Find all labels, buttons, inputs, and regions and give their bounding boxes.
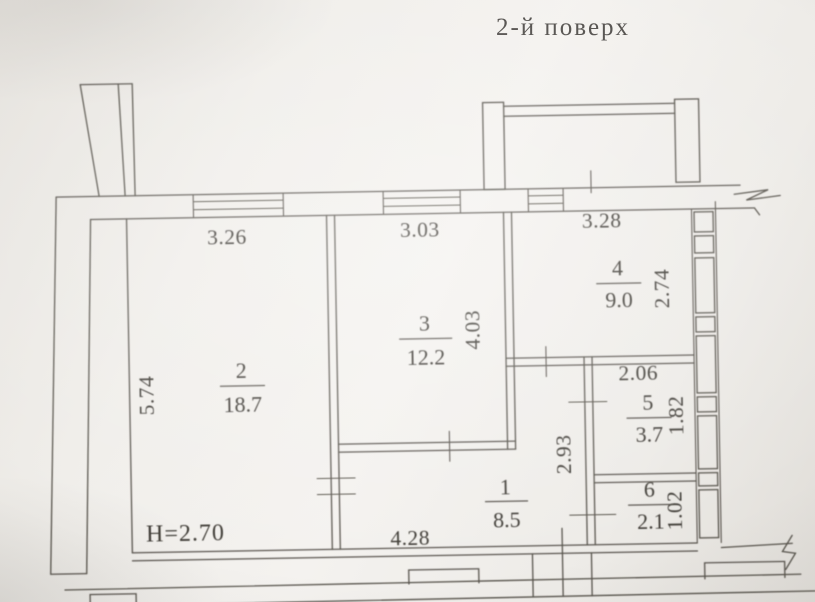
room-label-3: 3 12.2 xyxy=(399,310,452,370)
room1-number: 1 xyxy=(500,474,511,499)
ceiling-height-note: H=2.70 xyxy=(146,520,225,547)
room-labels: 1 8.5 2 18.7 3 12.2 4 9.0 xyxy=(218,254,673,541)
dim-room6-right: 1.02 xyxy=(662,490,687,530)
room-label-4: 4 9.0 xyxy=(596,255,641,313)
dim-room3-top: 3.03 xyxy=(400,217,440,242)
room3-number: 3 xyxy=(419,311,430,336)
dim-room2-left: 5.74 xyxy=(134,376,159,416)
room5-area: 3.7 xyxy=(635,422,663,447)
room6-number: 6 xyxy=(644,477,655,502)
dim-room2-top: 3.26 xyxy=(207,225,247,250)
room4-number: 4 xyxy=(612,255,623,280)
room2-number: 2 xyxy=(235,358,246,383)
dim-room4-right: 2.74 xyxy=(649,269,674,309)
room2-area: 18.7 xyxy=(223,392,262,418)
dim-hall-left: 2.93 xyxy=(551,434,576,474)
dim-room3-right: 4.03 xyxy=(460,310,485,350)
dim-room5-right: 1.82 xyxy=(664,395,689,435)
room1-area: 8.5 xyxy=(493,507,521,532)
dim-hall-bottom: 4.28 xyxy=(390,526,430,551)
room3-area: 12.2 xyxy=(407,344,446,370)
room-label-1: 1 8.5 xyxy=(485,474,528,533)
page-title: 2-й поверх xyxy=(496,14,630,41)
room4-area: 9.0 xyxy=(605,287,633,312)
room-label-2: 2 18.7 xyxy=(220,358,265,418)
windows xyxy=(193,188,563,217)
floor-plan-drawing: 2-й поверх xyxy=(0,0,815,602)
dim-room4-top: 3.28 xyxy=(582,208,622,233)
room6-area: 2.1 xyxy=(637,509,665,534)
scanned-floor-plan-page: 2-й поверх xyxy=(0,0,815,602)
right-wall-panels xyxy=(691,202,721,543)
room5-number: 5 xyxy=(642,390,653,415)
dim-room5-top: 2.06 xyxy=(618,361,658,386)
dimension-labels: 3.26 3.03 3.28 5.74 4.03 2.74 2.06 1.82 … xyxy=(132,207,691,555)
